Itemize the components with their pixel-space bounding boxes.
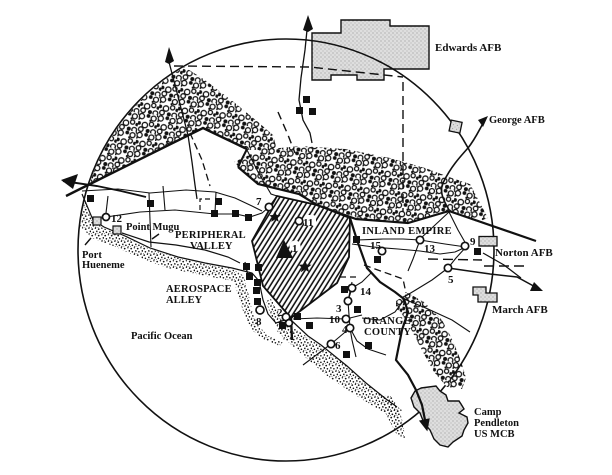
svg-text:8: 8 <box>256 316 262 328</box>
svg-text:12: 12 <box>111 213 123 225</box>
svg-text:INLAND EMPIRE: INLAND EMPIRE <box>362 226 452 237</box>
svg-text:Edwards AFB: Edwards AFB <box>435 42 502 54</box>
svg-text:5: 5 <box>448 274 454 286</box>
svg-text:Norton AFB: Norton AFB <box>495 247 553 259</box>
svg-text:Point Mugu: Point Mugu <box>126 222 180 233</box>
svg-text:10: 10 <box>329 314 341 326</box>
svg-text:Camp: Camp <box>474 407 502 418</box>
svg-text:1: 1 <box>292 243 298 255</box>
svg-text:Pacific Ocean: Pacific Ocean <box>131 331 193 342</box>
svg-text:ORANGE: ORANGE <box>363 316 411 327</box>
svg-text:7: 7 <box>256 196 262 208</box>
svg-text:6: 6 <box>335 340 341 352</box>
svg-text:11: 11 <box>303 217 313 229</box>
svg-text:13: 13 <box>424 243 436 255</box>
svg-text:COUNTY: COUNTY <box>364 327 411 338</box>
svg-text:Hueneme: Hueneme <box>82 260 125 271</box>
svg-text:Pendleton: Pendleton <box>474 418 519 429</box>
svg-text:9: 9 <box>470 236 476 248</box>
svg-text:14: 14 <box>360 286 372 298</box>
svg-text:VALLEY: VALLEY <box>190 241 233 252</box>
svg-text:ALLEY: ALLEY <box>166 295 203 306</box>
svg-text:PERIPHERAL: PERIPHERAL <box>175 230 246 241</box>
svg-text:US MCB: US MCB <box>474 429 515 440</box>
svg-text:15: 15 <box>370 240 382 252</box>
svg-text:March AFB: March AFB <box>492 304 548 316</box>
svg-text:AEROSPACE: AEROSPACE <box>166 284 232 295</box>
svg-text:2: 2 <box>277 307 283 319</box>
svg-text:George AFB: George AFB <box>489 115 545 126</box>
svg-text:4: 4 <box>342 324 348 336</box>
